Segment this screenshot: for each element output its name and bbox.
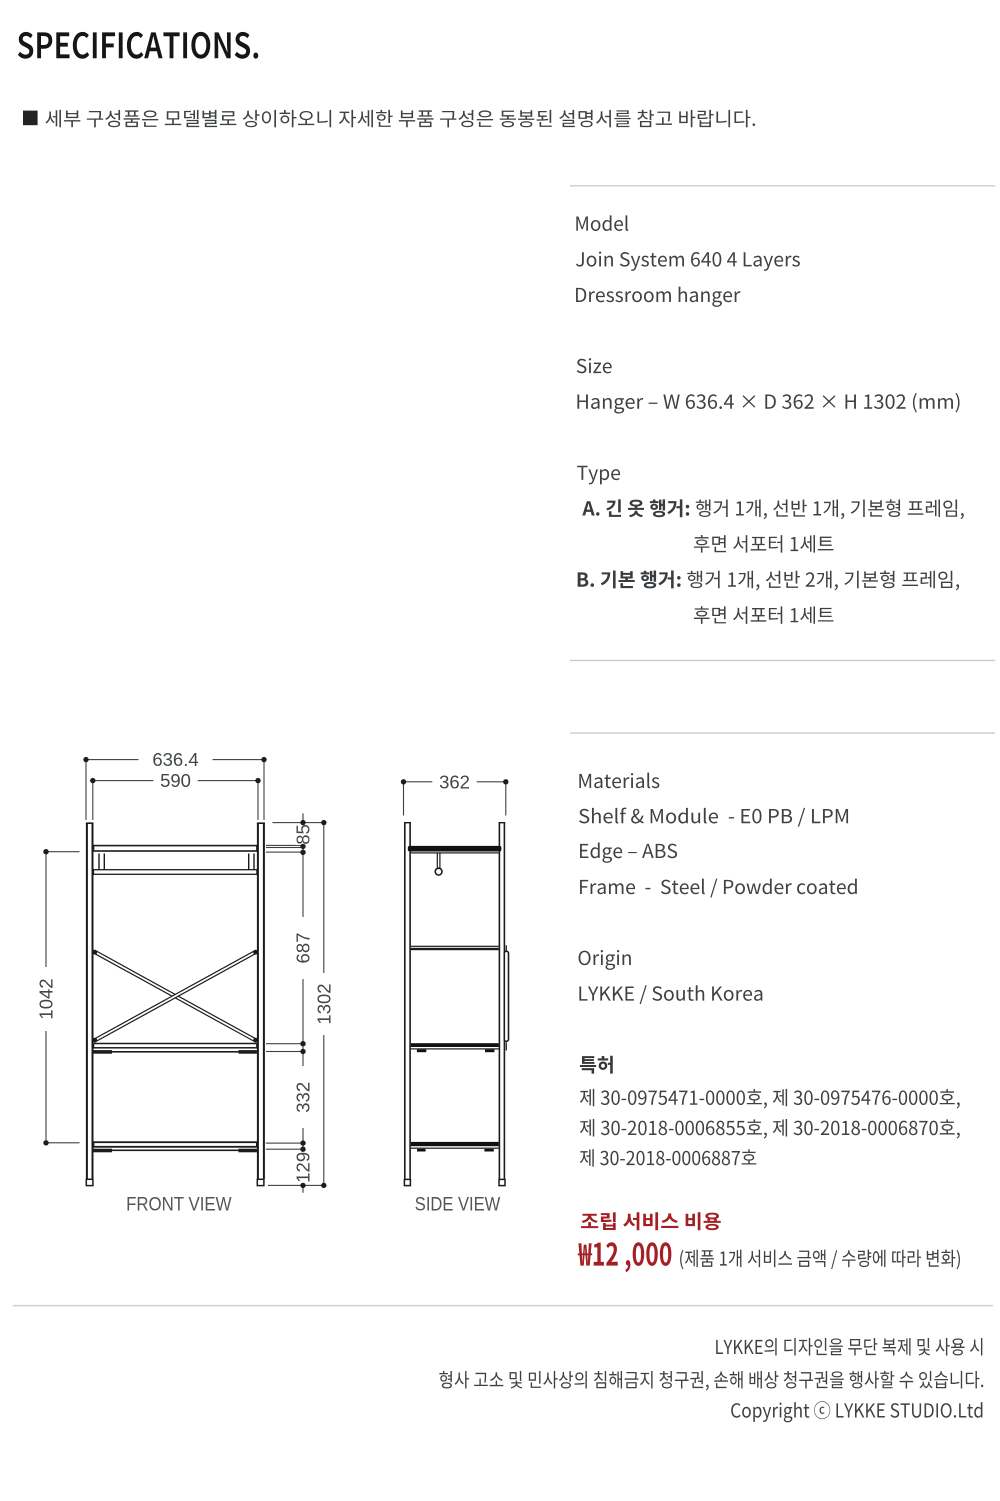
svg-text:SIDE VIEW: SIDE VIEW: [415, 1195, 501, 1216]
svg-text:85: 85: [293, 824, 314, 845]
svg-text:687: 687: [293, 933, 314, 964]
svg-text:129: 129: [293, 1152, 314, 1183]
svg-text:1042: 1042: [36, 978, 57, 1019]
svg-text:362: 362: [439, 771, 470, 792]
svg-text:332: 332: [293, 1082, 314, 1113]
svg-text:590: 590: [160, 770, 191, 791]
svg-text:FRONT VIEW: FRONT VIEW: [126, 1195, 232, 1216]
svg-text:1302: 1302: [313, 983, 334, 1024]
svg-text:636.4: 636.4: [152, 749, 198, 770]
